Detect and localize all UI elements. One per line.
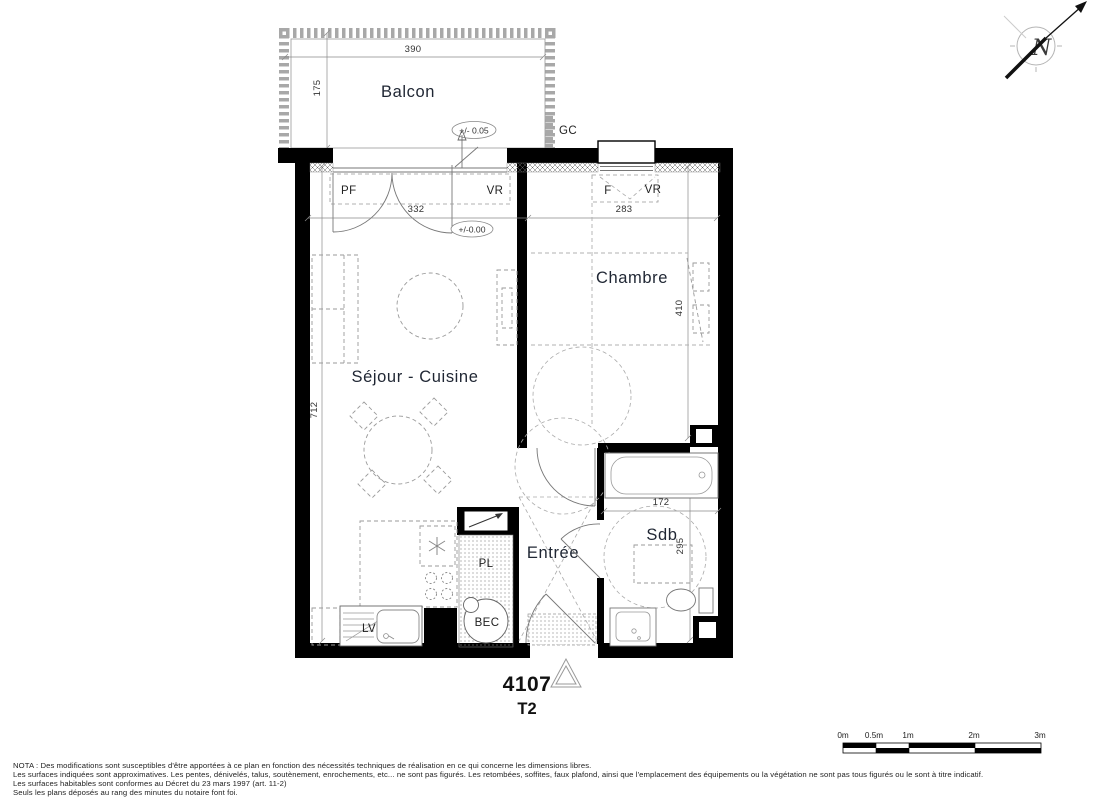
living-level: +/-0.00 bbox=[459, 225, 486, 235]
entry: Entrée bbox=[515, 418, 611, 645]
notch-window-bath bbox=[699, 622, 716, 638]
notch-window-bedroom bbox=[696, 429, 712, 443]
unit-number: 4107 bbox=[503, 673, 552, 696]
doormat bbox=[528, 614, 596, 645]
scale-bar: 0m 0.5m 1m 2m 3m bbox=[837, 731, 1046, 753]
toilet-tank bbox=[699, 588, 713, 613]
note-line-1: NOTA : Des modifications sont susceptibl… bbox=[13, 761, 591, 770]
scale-2m: 2m bbox=[968, 731, 980, 740]
unit-type: T2 bbox=[517, 700, 536, 718]
note-line-3: Les surfaces habitables sont conformes a… bbox=[13, 779, 287, 788]
worktop-outline bbox=[360, 521, 457, 607]
counter-end bbox=[312, 608, 340, 645]
note-line-2: Les surfaces indiquées sont approximativ… bbox=[13, 770, 983, 779]
wall-linings bbox=[310, 163, 720, 172]
toilet bbox=[667, 589, 696, 611]
turning-circle bbox=[515, 418, 611, 514]
dining-chair bbox=[420, 398, 448, 426]
dining-chair bbox=[424, 466, 452, 494]
wall-right bbox=[718, 148, 733, 658]
bathroom-door-swing bbox=[561, 524, 600, 539]
snowflake-icon bbox=[429, 537, 445, 555]
wall-kitchen-stub bbox=[424, 608, 457, 647]
scale-05m: 0.5m bbox=[865, 731, 883, 740]
living-label: Séjour - Cuisine bbox=[352, 368, 479, 386]
wall-closet-right bbox=[513, 535, 519, 647]
closet-column: PL BEC bbox=[459, 511, 513, 647]
balcony: 390 175 Balcon +/- 0.05 GC bbox=[279, 28, 577, 151]
balcony-depth-dim: 175 bbox=[312, 80, 323, 97]
notes: NOTA : Des modifications sont susceptibl… bbox=[13, 761, 983, 797]
wall-bath-top bbox=[598, 443, 690, 453]
unit-label: 4107 T2 bbox=[503, 659, 581, 718]
living-room: Séjour - Cuisine bbox=[312, 255, 517, 498]
bedroom-vr-label: VR bbox=[645, 184, 662, 196]
dining-table bbox=[364, 416, 432, 484]
entrance-marker-icon bbox=[551, 659, 581, 687]
north-arrow: N bbox=[1004, 1, 1087, 78]
f-label: F bbox=[604, 185, 611, 197]
living-width-dim: 332 bbox=[408, 204, 425, 215]
living-vr-label: VR bbox=[487, 185, 504, 197]
pf-label: PF bbox=[341, 185, 357, 197]
floor-plan-canvas: 390 175 Balcon +/- 0.05 GC bbox=[0, 0, 1101, 800]
dishwasher-label: LV bbox=[362, 623, 376, 635]
bedroom-height-dim: 410 bbox=[674, 300, 685, 317]
wall-bath-left-lower bbox=[597, 578, 604, 644]
entry-label: Entrée bbox=[527, 544, 579, 562]
bedroom-label: Chambre bbox=[596, 269, 668, 287]
pf-shutter-box bbox=[330, 174, 510, 204]
bathtub bbox=[605, 453, 718, 498]
water-heater-label: BEC bbox=[475, 617, 500, 629]
bedroom-width-dim: 283 bbox=[616, 204, 633, 215]
balcony-label: Balcon bbox=[381, 83, 435, 101]
note-line-4: Seuls les plans déposés au rang des minu… bbox=[13, 788, 238, 797]
wall-left bbox=[295, 148, 310, 658]
wall-bath-left-upper bbox=[597, 448, 604, 520]
coffee-table bbox=[397, 273, 463, 339]
dining-chair bbox=[358, 470, 386, 498]
wardrobe bbox=[693, 305, 709, 333]
wardrobe bbox=[693, 263, 709, 291]
duct-label: GC bbox=[559, 125, 577, 137]
closet-label: PL bbox=[479, 558, 494, 570]
scale-3m: 3m bbox=[1034, 731, 1046, 740]
living-height-dim: 712 bbox=[309, 402, 320, 419]
scale-0m: 0m bbox=[837, 731, 849, 740]
bedroom-door-swing bbox=[537, 448, 595, 506]
cooktop bbox=[426, 573, 453, 600]
balcony-width-dim: 390 bbox=[405, 44, 422, 55]
bathroom-label: Sdb bbox=[646, 526, 677, 544]
scale-1m: 1m bbox=[902, 731, 914, 740]
bedroom-window-box bbox=[598, 141, 655, 163]
floor-plan: 390 175 Balcon +/- 0.05 GC bbox=[0, 0, 1101, 800]
pf-door-swing-left bbox=[333, 173, 392, 232]
sink bbox=[377, 610, 419, 643]
openings: PF VR F VR bbox=[330, 130, 661, 233]
pf-door-swing-right bbox=[392, 173, 452, 233]
wall-living-bedroom bbox=[517, 163, 527, 448]
wall-top-middle bbox=[507, 148, 598, 163]
turning-circle bbox=[533, 347, 631, 445]
tv-unit bbox=[497, 270, 517, 345]
